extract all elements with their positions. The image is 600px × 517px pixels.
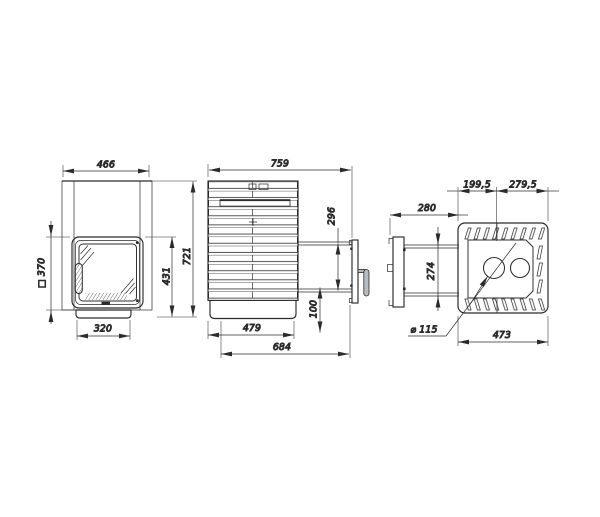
door-latch xyxy=(102,302,111,305)
dim-label-depth-with-tunnel: 684 xyxy=(273,342,291,353)
glass-reflection-marks xyxy=(81,246,136,295)
door-handle xyxy=(75,264,82,294)
dim-label-chimney-diameter: ⌀ 115 xyxy=(410,325,437,336)
stove-technical-drawing: 466 □ 370 320 431 721 xyxy=(0,0,600,517)
convection-grille-top xyxy=(463,227,545,240)
door-glass xyxy=(79,244,137,301)
dim-label-tunnel-width: 274 xyxy=(426,262,437,280)
dim-label-tunnel-length: 280 xyxy=(418,203,436,214)
convection-grille-bottom xyxy=(463,298,545,311)
dim-label-overall-height: 721 xyxy=(182,247,193,265)
dim-label-firebox-height: 296 xyxy=(327,207,338,225)
handle-pivot-top xyxy=(388,265,394,272)
chimney-hole xyxy=(484,258,505,279)
door-vent-grille xyxy=(86,293,128,300)
top-view: 199,5 279,5 280 274 ⌀ 115 473 xyxy=(388,180,560,347)
front-base xyxy=(76,310,131,318)
plate-bolt-top xyxy=(350,248,352,250)
door-hinge-bottom xyxy=(136,299,139,302)
dim-label-overall-width: 473 xyxy=(493,330,511,341)
drawing-canvas: 466 □ 370 320 431 721 xyxy=(0,0,600,517)
fire-tunnel-side xyxy=(298,240,369,303)
secondary-hole xyxy=(511,259,530,278)
dim-label-base-width: 320 xyxy=(94,324,112,335)
dim-label-chimney-offset-front: 199,5 xyxy=(463,180,491,191)
fire-tunnel-top xyxy=(388,237,460,307)
dim-label-stone-opening: □ 370 xyxy=(37,258,48,288)
dim-label-door-height: 431 xyxy=(162,267,173,285)
dim-label-front-width: 466 xyxy=(97,160,115,171)
dim-label-overall-depth: 759 xyxy=(271,159,289,170)
dim-label-chimney-offset-rear: 279,5 xyxy=(509,180,537,191)
dim-label-body-depth: 479 xyxy=(243,323,261,334)
tunnel-door-plate-side xyxy=(352,240,358,303)
recessed-slat xyxy=(220,200,290,206)
firebox-door xyxy=(72,237,143,308)
side-base xyxy=(210,300,296,319)
brick-column-right xyxy=(140,181,152,310)
front-view: 466 □ 370 320 431 721 xyxy=(37,160,198,341)
plate-bolt-bottom xyxy=(350,285,352,287)
side-view: 759 296 100 479 684 xyxy=(208,159,369,359)
door-hinge-top xyxy=(136,241,139,244)
tunnel-door-plate-top xyxy=(393,237,404,307)
front-dimensions: 466 □ 370 320 431 721 xyxy=(37,160,198,341)
tunnel-door-handle xyxy=(358,270,369,297)
convector-body xyxy=(208,181,298,300)
dim-label-plinth-height: 100 xyxy=(309,300,320,318)
